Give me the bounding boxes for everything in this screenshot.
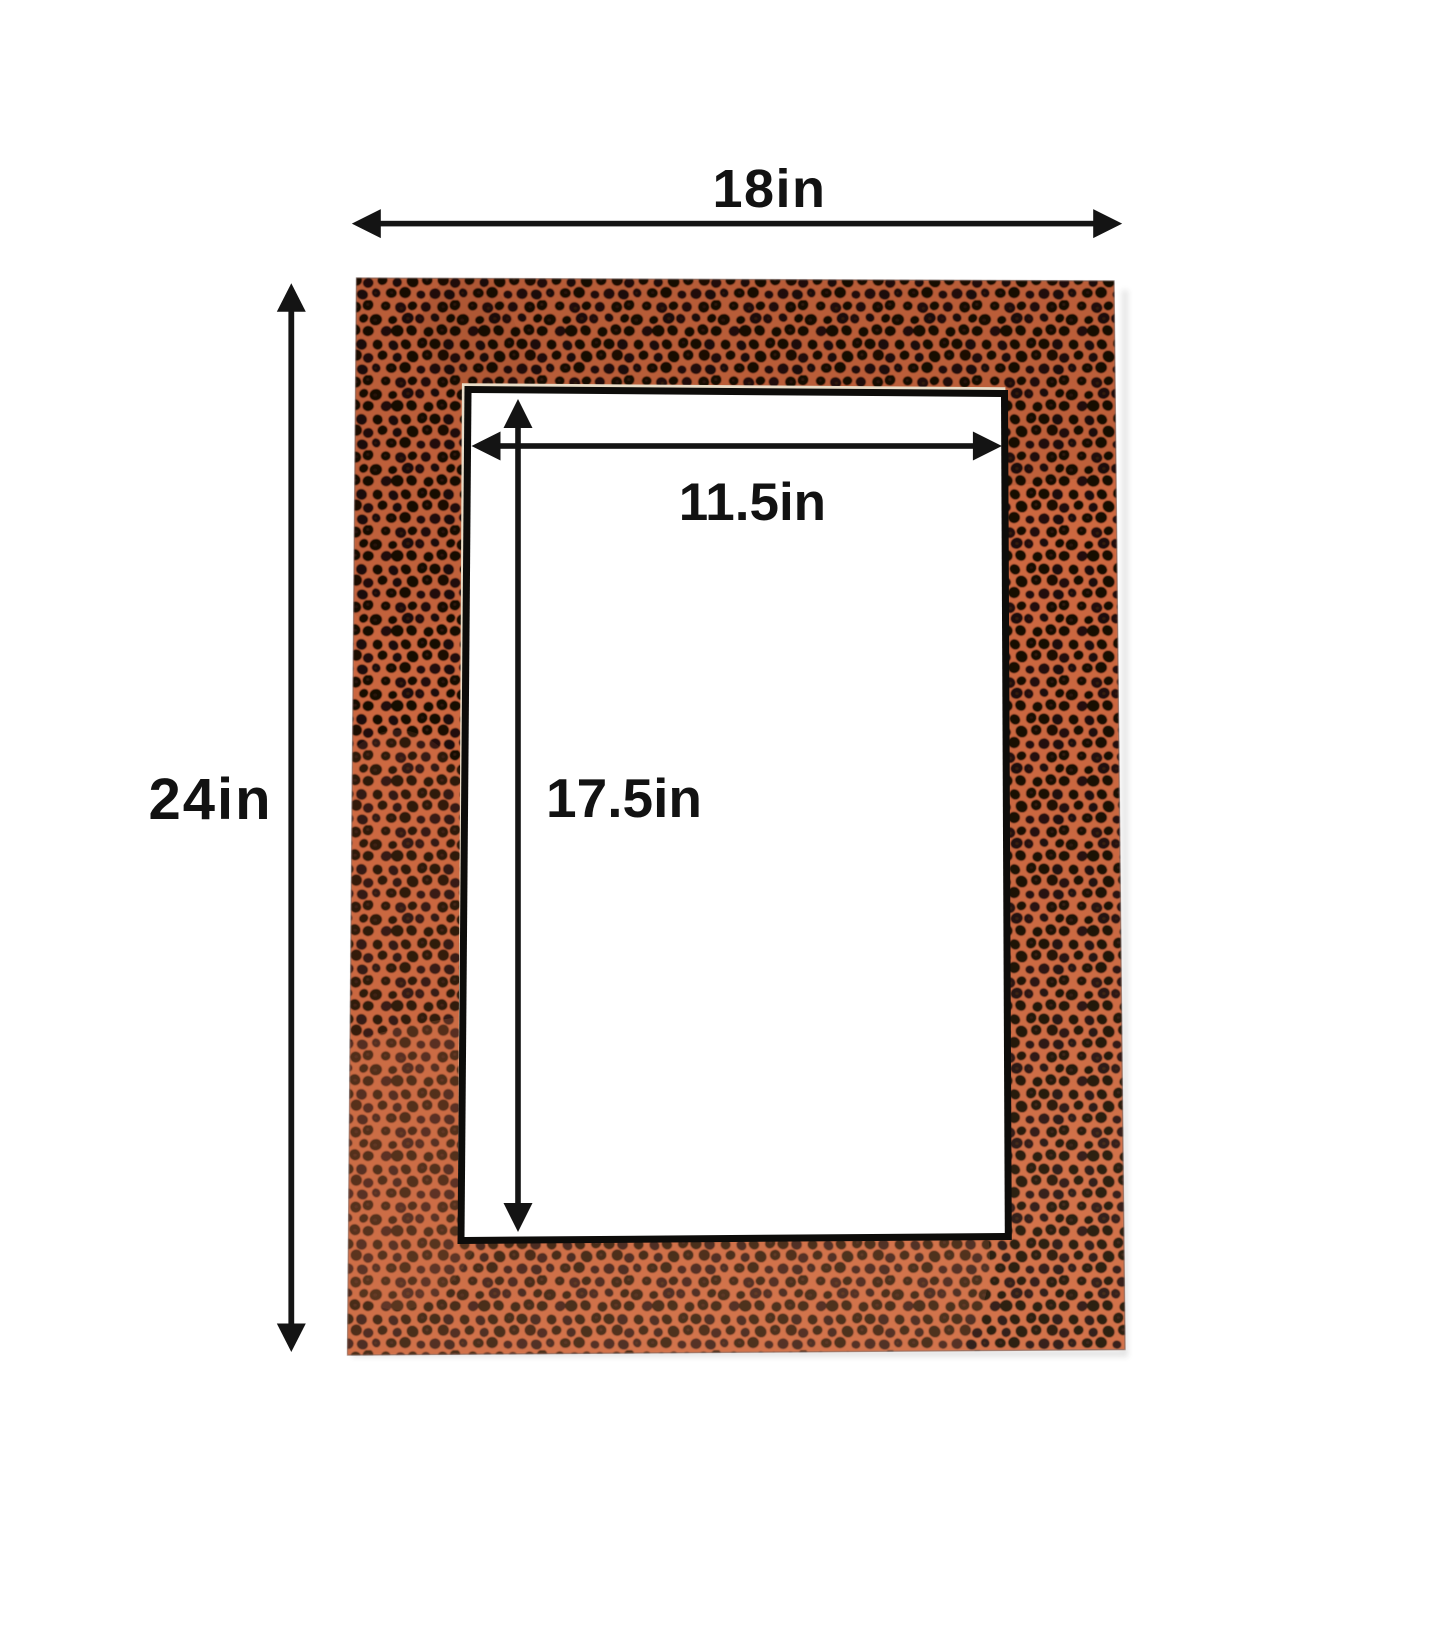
svg-text:24in: 24in [148, 767, 272, 832]
svg-text:11.5in: 11.5in [679, 473, 826, 532]
svg-text:18in: 18in [712, 159, 826, 219]
svg-text:17.5in: 17.5in [546, 767, 702, 829]
